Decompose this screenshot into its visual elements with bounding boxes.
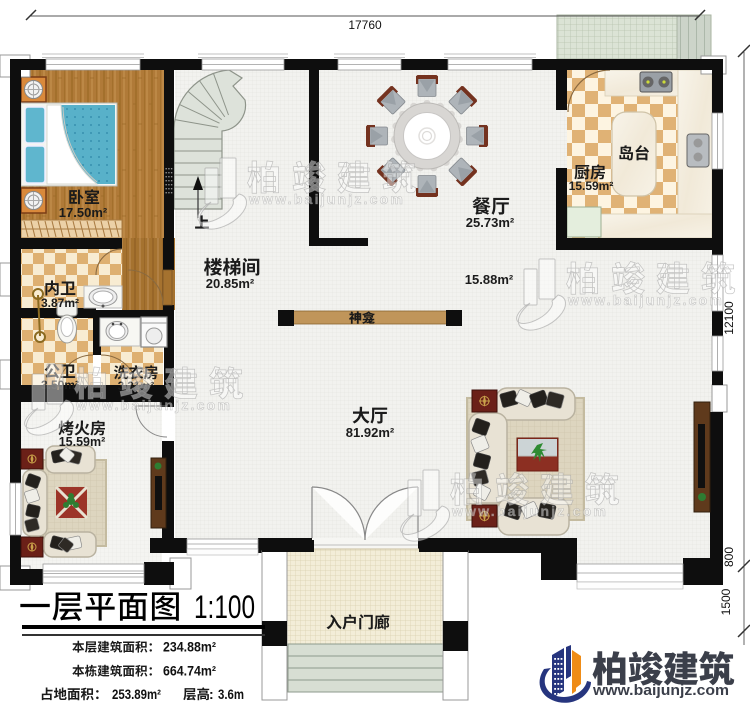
svg-text:1500: 1500 bbox=[719, 588, 733, 615]
svg-text:664.74m²: 664.74m² bbox=[163, 663, 216, 679]
svg-text:17760: 17760 bbox=[348, 18, 382, 32]
svg-text:www.baijunjz.com: www.baijunjz.com bbox=[248, 191, 405, 207]
svg-text:17.50m²: 17.50m² bbox=[59, 205, 108, 220]
svg-text:www.baijunjz.com: www.baijunjz.com bbox=[451, 503, 608, 519]
svg-text:3.6m: 3.6m bbox=[218, 686, 244, 702]
svg-text:800: 800 bbox=[722, 547, 736, 567]
svg-text:15.88m²: 15.88m² bbox=[465, 272, 514, 287]
svg-text:253.89m²: 253.89m² bbox=[112, 686, 161, 702]
svg-text::: : bbox=[209, 686, 214, 702]
svg-text:3.87m²: 3.87m² bbox=[41, 296, 79, 310]
svg-text:81.92m²: 81.92m² bbox=[346, 425, 395, 440]
svg-text:25.73m²: 25.73m² bbox=[466, 215, 515, 230]
svg-text:234.88m²: 234.88m² bbox=[163, 639, 216, 655]
svg-text:15.59m²: 15.59m² bbox=[569, 179, 614, 193]
svg-text:www.baijunjz.com: www.baijunjz.com bbox=[75, 397, 232, 413]
svg-text:www.baijunjz.com: www.baijunjz.com bbox=[592, 683, 729, 699]
svg-text:1:100: 1:100 bbox=[194, 589, 255, 625]
svg-text:15.59m²: 15.59m² bbox=[59, 435, 106, 449]
svg-text:www.baijunjz.com: www.baijunjz.com bbox=[567, 292, 724, 308]
svg-text:12100: 12100 bbox=[722, 301, 736, 335]
svg-text:20.85m²: 20.85m² bbox=[206, 276, 255, 291]
